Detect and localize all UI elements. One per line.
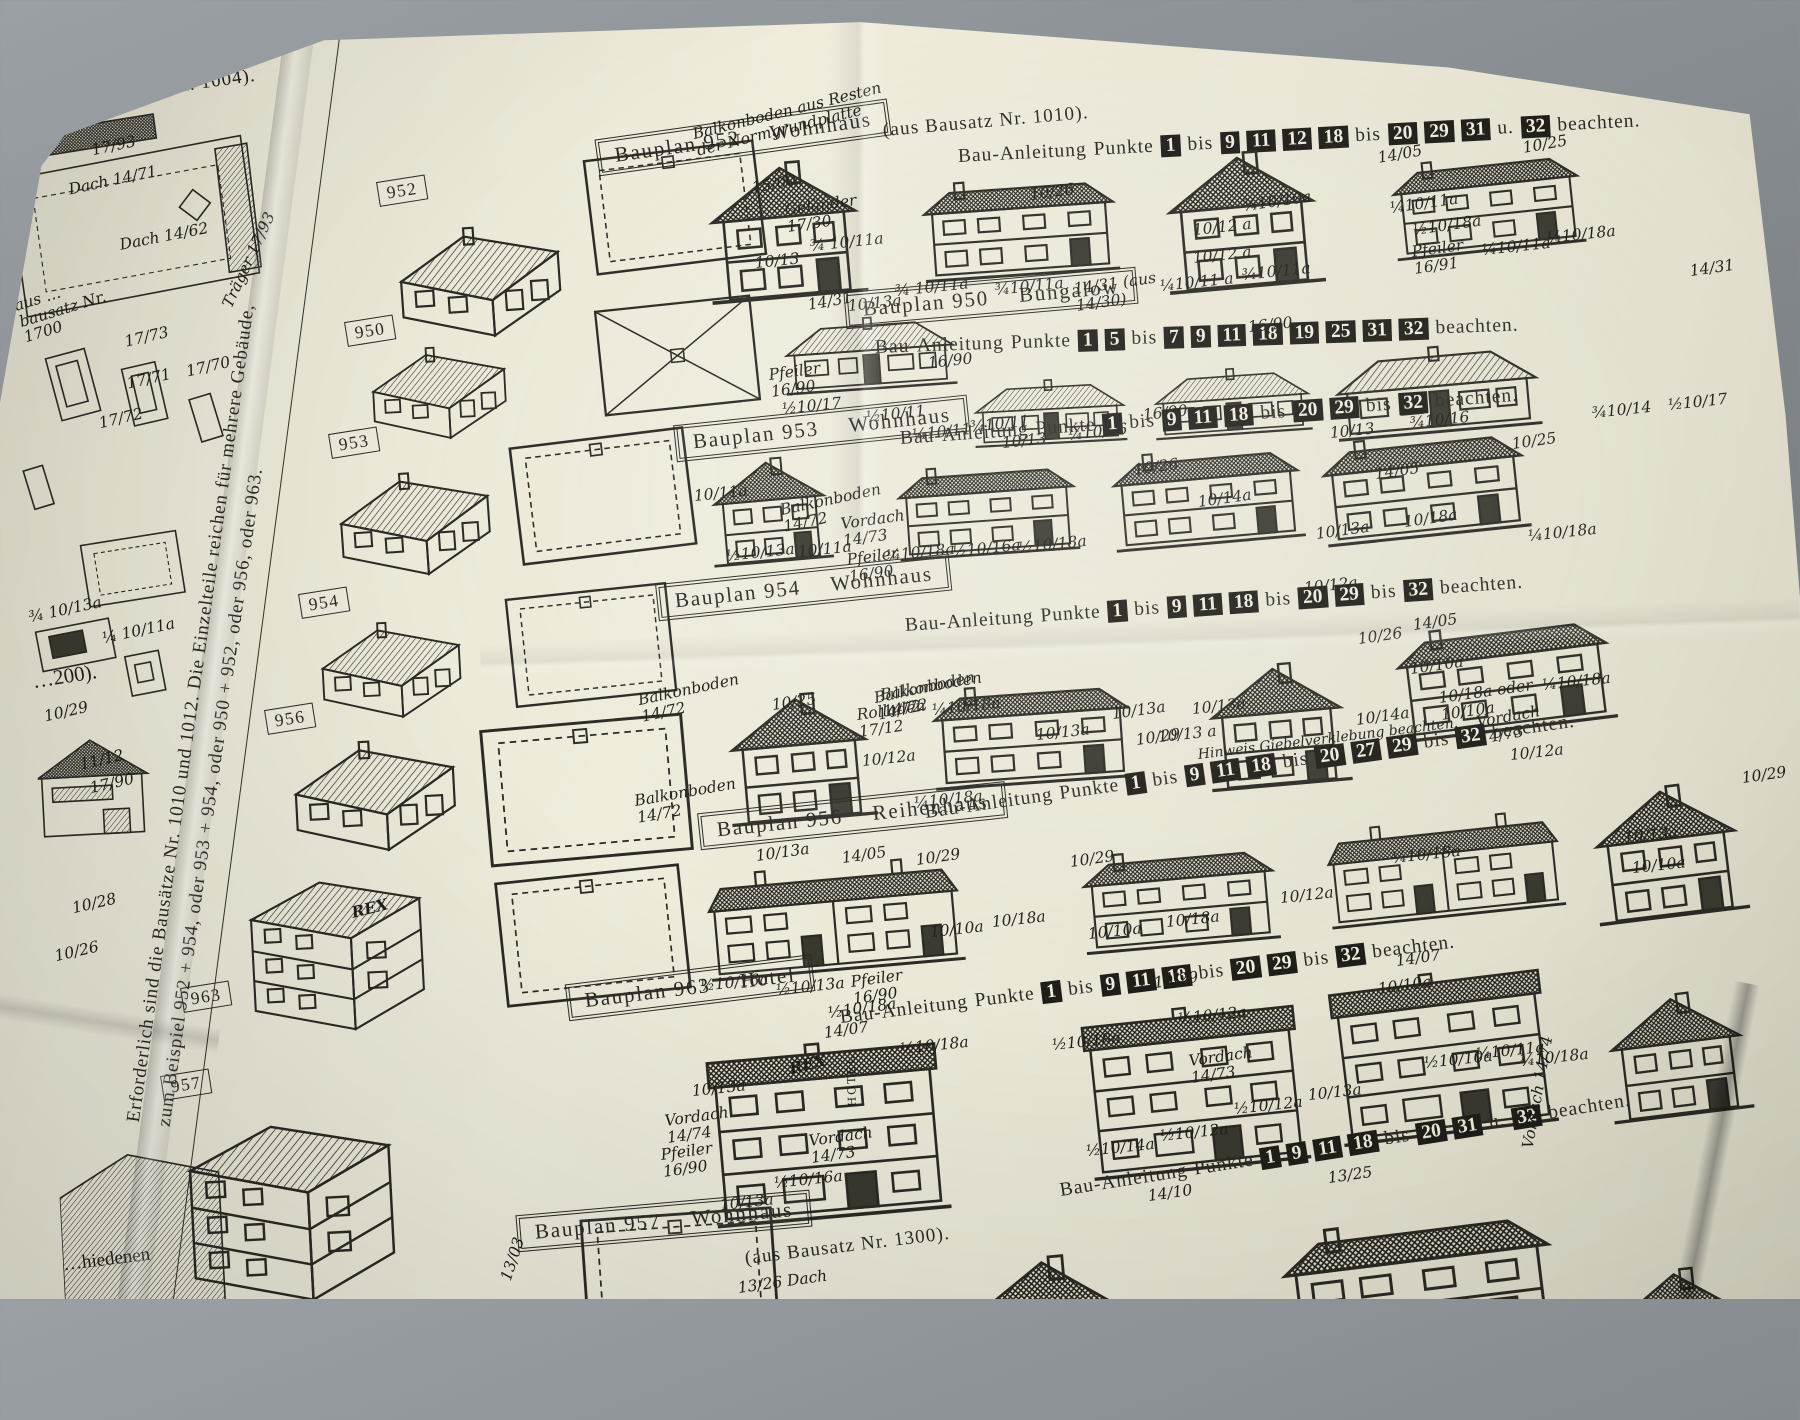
elevation-drawing bbox=[1314, 802, 1575, 947]
instruction-word: Bau-Anleitung bbox=[904, 606, 1034, 636]
iso-house-953 bbox=[303, 433, 522, 587]
instruction-word: Punkte bbox=[1193, 1149, 1256, 1179]
instruction-word: u. bbox=[1497, 117, 1515, 139]
instruction-word: bis bbox=[1302, 947, 1330, 971]
instruction-word: beachten. bbox=[1434, 385, 1518, 412]
step-number-badge: 32 bbox=[1398, 391, 1429, 415]
step-number-badge: 1 bbox=[1102, 412, 1123, 435]
instruction-word: Punkte bbox=[1035, 414, 1096, 439]
iso-house-963 bbox=[207, 842, 467, 1050]
elevation-drawing bbox=[948, 1244, 1146, 1420]
step-number-badge: 1 bbox=[1259, 1145, 1282, 1170]
step-number-badge: 29 bbox=[1334, 583, 1365, 607]
instruction-word: bis bbox=[1383, 1125, 1412, 1150]
plan-number: Bauplan 954 bbox=[674, 575, 802, 613]
step-number-badge: 20 bbox=[1415, 1119, 1448, 1145]
plan-type: Hotel bbox=[739, 962, 797, 994]
part-label: 14/31 bbox=[1689, 257, 1736, 280]
step-number-badge: 29 bbox=[1329, 396, 1360, 420]
part-label: 13/03 bbox=[498, 1235, 528, 1283]
instruction-word: bis bbox=[1260, 401, 1287, 424]
step-number-badge: 11 bbox=[1188, 406, 1218, 430]
instruction-word: bis bbox=[1151, 767, 1179, 791]
step-number-badge: 11 bbox=[1126, 968, 1157, 993]
step-number-badge: 31 bbox=[1451, 1113, 1484, 1139]
step-number-badge: 29 bbox=[1266, 951, 1298, 976]
part-label: ¼10/18a bbox=[1527, 521, 1597, 545]
plan-type: Wohnhaus bbox=[690, 1197, 794, 1231]
instruction-word: bis bbox=[1129, 410, 1156, 433]
part-label: 16/90 bbox=[927, 350, 973, 371]
step-number-badge: 29 bbox=[1424, 120, 1455, 144]
step-number-badge: 18 bbox=[1228, 590, 1259, 614]
step-number-badge: 11 bbox=[1217, 324, 1246, 347]
plan-number: Bauplan 953 bbox=[692, 416, 820, 454]
part-label: 10/13a bbox=[755, 841, 811, 865]
step-number-badge: 18 bbox=[1223, 403, 1254, 427]
part-label: 10/29 bbox=[1741, 764, 1788, 787]
instruction-word: Bau-Anleitung bbox=[957, 139, 1087, 167]
bauplan-header-957: Bauplan 957 Wohnhaus bbox=[519, 1193, 810, 1249]
instruction-word: Punkte bbox=[974, 983, 1036, 1011]
step-number-badge: 31 bbox=[1460, 118, 1491, 142]
step-number-badge: 1 bbox=[1078, 329, 1099, 352]
step-number-badge: 20 bbox=[1297, 585, 1328, 609]
part-label: 10/13a bbox=[1111, 699, 1167, 723]
instruction-word: bis bbox=[1197, 960, 1225, 984]
part-label: 14/10 bbox=[1147, 1182, 1194, 1205]
instruction-word: bis bbox=[1265, 588, 1292, 611]
photo-backdrop: ätze Nr. 1000, 1002 u. 1004). bbox=[0, 0, 1800, 1299]
plan-number: Bauplan 963 bbox=[583, 973, 712, 1013]
instruction-word: Punkte bbox=[1040, 601, 1101, 626]
instruction-word: beachten. bbox=[1557, 110, 1641, 135]
step-number-badge: 9 bbox=[1166, 595, 1187, 618]
part-label: 10/29 bbox=[1135, 726, 1182, 749]
instruction-word: bis bbox=[1067, 976, 1095, 1000]
step-number-badge: 20 bbox=[1292, 398, 1323, 422]
instruction-word: Punkte bbox=[1010, 330, 1071, 353]
instruction-word: bis bbox=[1134, 597, 1161, 620]
plan-type: Wohnhaus bbox=[829, 561, 934, 597]
instruction-word: Punkte bbox=[1093, 136, 1154, 160]
step-number-badge: 9 bbox=[1099, 973, 1121, 997]
instruction-word: bis bbox=[1131, 327, 1157, 349]
part-label: 13/25 bbox=[1327, 1164, 1374, 1187]
iso-house-957 bbox=[158, 1079, 425, 1322]
bauplan-header-954: Bauplan 954 Wohnhaus bbox=[658, 557, 949, 618]
bausatz-suffix: (aus Bausatz Nr. 1010). bbox=[882, 102, 1090, 142]
instruction-word: bis bbox=[1370, 581, 1397, 604]
part-label: 10/25 bbox=[1511, 430, 1558, 453]
plan-number: Bauplan 956 bbox=[716, 804, 844, 842]
part-label: 14/07 bbox=[1395, 947, 1442, 970]
step-number-badge: 20 bbox=[1230, 955, 1262, 980]
step-number-badge: 32 bbox=[1403, 578, 1434, 602]
elevation-drawing bbox=[1573, 1255, 1787, 1415]
paper-sheet: ätze Nr. 1000, 1002 u. 1004). bbox=[0, 0, 1800, 1299]
step-number-badge: 25 bbox=[1326, 320, 1356, 343]
part-label: 13/26 Dach bbox=[737, 1268, 828, 1297]
step-number-badge: 18 bbox=[1347, 1130, 1380, 1156]
step-number-badge: 19 bbox=[1289, 322, 1319, 345]
part-label: 10/29 bbox=[1153, 969, 1200, 992]
instruction-word: beachten. bbox=[1439, 572, 1523, 599]
instruction-word: u. bbox=[1487, 1110, 1507, 1133]
step-number-badge: 1 bbox=[1125, 771, 1148, 796]
step-number-badge: 11 bbox=[1312, 1136, 1344, 1162]
bausatz-suffix: (aus Bausatz Nr. 1300). bbox=[744, 1223, 952, 1270]
step-number-badge: 11 bbox=[1193, 593, 1223, 617]
step-number-badge: 9 bbox=[1161, 408, 1182, 431]
instruction-word: bis bbox=[1355, 124, 1382, 146]
step-number-badge: 5 bbox=[1104, 328, 1125, 351]
plan-row-957: Bauplan 957 Wohnhaus (aus Bausatz Nr. 13… bbox=[400, 1080, 1800, 1299]
step-number-badge: 7 bbox=[1164, 326, 1185, 349]
elevation-drawing bbox=[1272, 1198, 1568, 1381]
instruction-word: Punkte bbox=[1058, 775, 1121, 804]
bauplan-header-963: Bauplan 963 Hotel bbox=[568, 958, 812, 1018]
step-number-badge: 9 bbox=[1285, 1141, 1308, 1166]
instruction-word: bis bbox=[1365, 394, 1392, 417]
plan-number: Bauplan 957 bbox=[534, 1209, 662, 1245]
step-number-badge: 9 bbox=[1191, 325, 1212, 348]
step-number-badge: 1 bbox=[1107, 599, 1128, 622]
bau-anleitung-line-957: Bau-AnleitungPunkte191118bis2031u.32beac… bbox=[1058, 1089, 1639, 1202]
step-number-badge: 9 bbox=[1184, 763, 1207, 788]
step-number-badge: 1 bbox=[1040, 980, 1062, 1004]
part-label: 10/18a bbox=[991, 908, 1046, 930]
step-number-badge: 32 bbox=[1335, 943, 1367, 968]
step-number-badge: 11 bbox=[1210, 758, 1241, 784]
instruction-word: beachten. bbox=[1547, 1090, 1632, 1124]
